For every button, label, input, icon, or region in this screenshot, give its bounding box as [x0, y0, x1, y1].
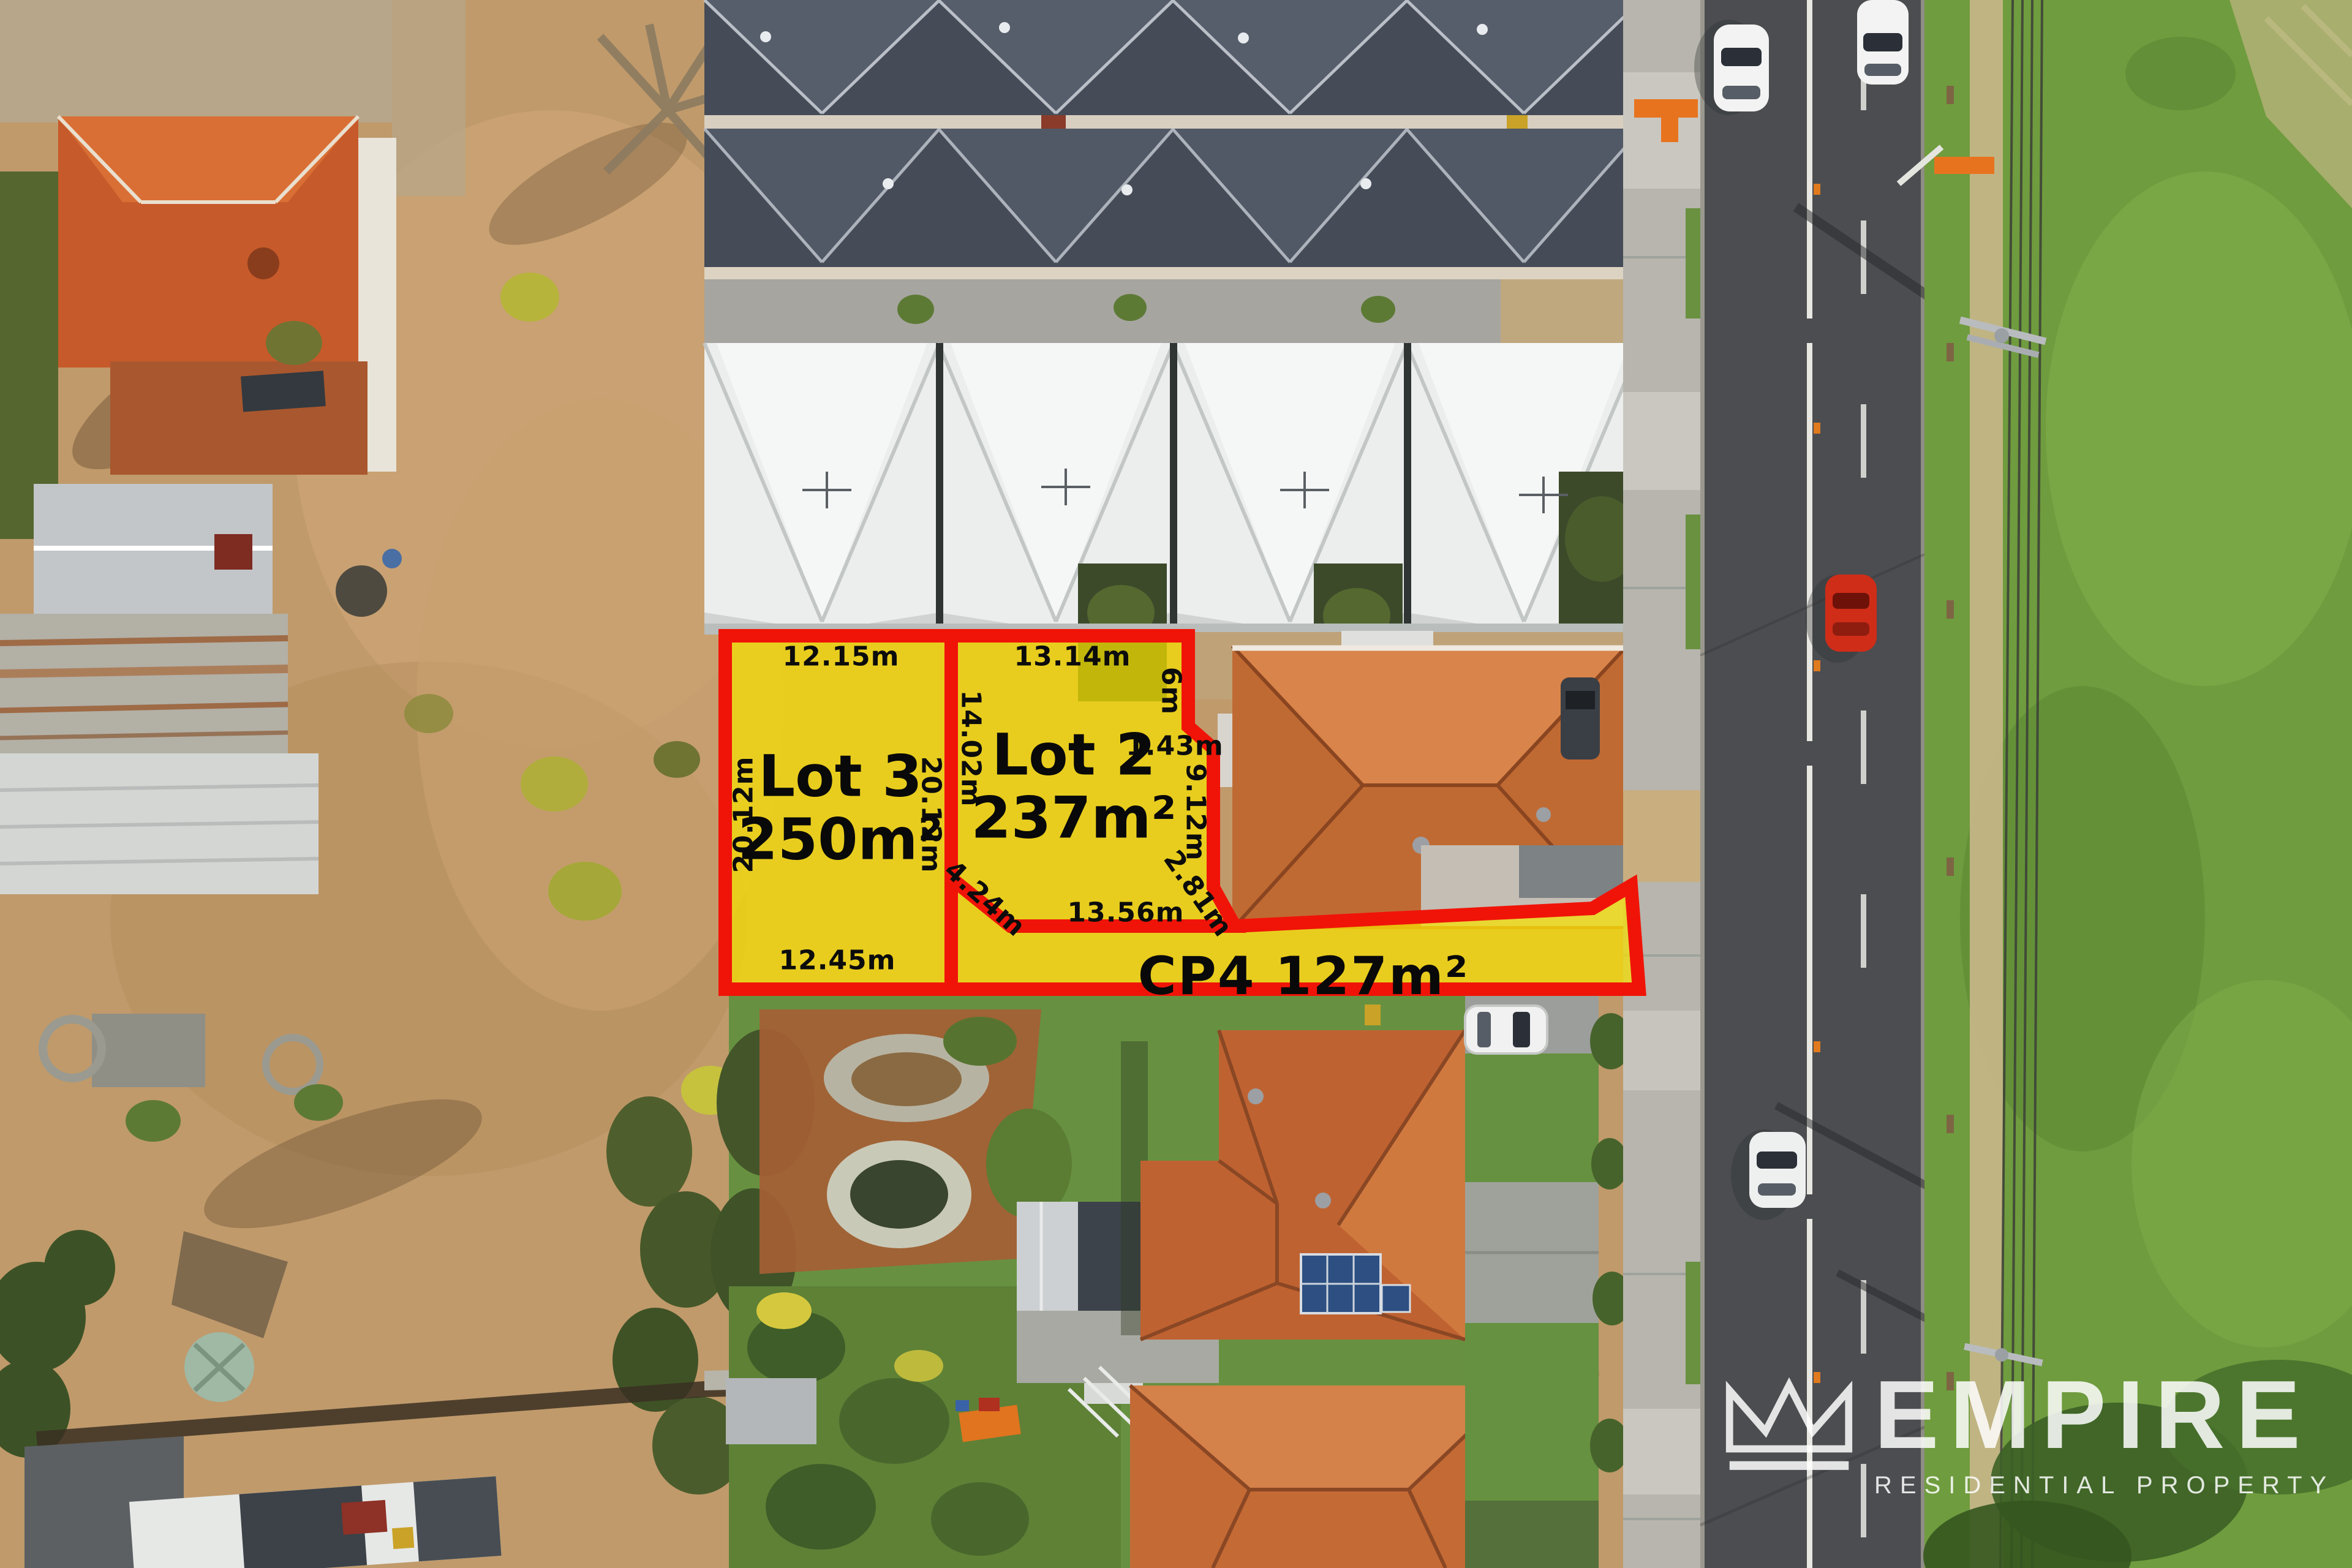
lot-3-highlight — [725, 636, 951, 989]
car-white-north — [1694, 20, 1769, 115]
car-white-south — [1731, 1129, 1806, 1220]
laneway — [0, 0, 392, 123]
left-footpath — [1623, 0, 1700, 1568]
orange-road-marking — [1634, 99, 1698, 118]
driveway-column-bottom — [1465, 992, 1632, 1568]
empire-logo: EMPIRE RESIDENTIAL PROPERTY — [1722, 1371, 2334, 1499]
parked-car-white — [1465, 1006, 1547, 1053]
orange-house-bottom-B — [1130, 1385, 1518, 1568]
brand-tagline: RESIDENTIAL PROPERTY — [1874, 1472, 2334, 1499]
verge-path — [1970, 0, 2003, 1568]
orange-road-marking-right — [1934, 157, 1994, 174]
aerial-photo: 12.15m 20.12m 20.12m 12.45m 13.14m 14.02… — [0, 0, 2352, 1568]
brand-name: EMPIRE — [1874, 1371, 2334, 1460]
lot-2-highlight — [951, 636, 1235, 926]
crown-icon — [1722, 1371, 1856, 1476]
car-red — [1806, 575, 1877, 663]
dark-roof-townhouses — [704, 0, 1642, 344]
grass-verge-right — [1899, 0, 2352, 1568]
road-centre-line — [1807, 0, 1812, 1568]
aerial-scene — [0, 0, 2352, 1568]
orange-roof-house-right — [1232, 646, 1642, 929]
car-white-north-2 — [1857, 0, 1909, 85]
